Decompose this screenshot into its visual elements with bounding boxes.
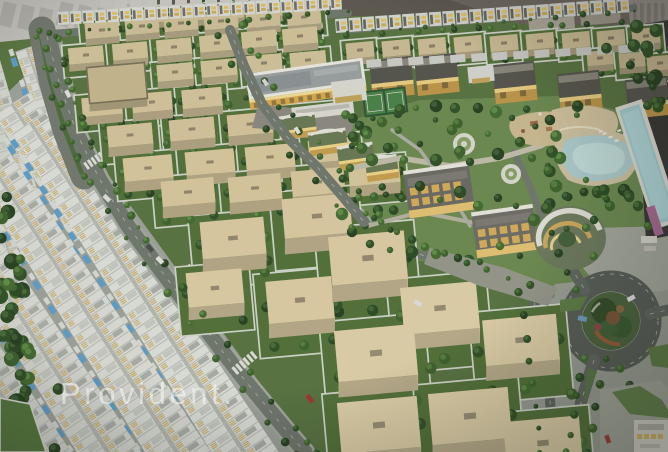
svg-text:Provident.: Provident. bbox=[60, 376, 236, 411]
